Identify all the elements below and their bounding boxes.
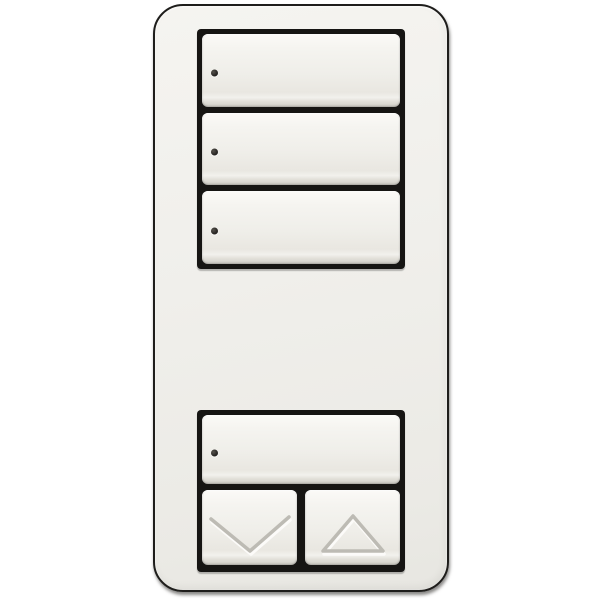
scene-button-2[interactable] [202, 113, 400, 186]
led-indicator [211, 449, 218, 456]
led-indicator [211, 227, 218, 234]
scene-button-1[interactable] [202, 34, 400, 107]
rocker-row [202, 490, 400, 565]
switch-faceplate [153, 4, 449, 592]
lower-button[interactable] [202, 490, 297, 565]
rocker-button-group [197, 410, 405, 572]
triangle-up-icon [309, 510, 397, 556]
led-indicator [211, 70, 218, 77]
scene-button-3[interactable] [202, 191, 400, 264]
led-indicator [211, 149, 218, 156]
scene-button-group [197, 29, 405, 269]
product-photo [0, 0, 600, 600]
scene-button-4[interactable] [202, 415, 400, 484]
chevron-down-icon [206, 510, 294, 556]
raise-button[interactable] [305, 490, 400, 565]
